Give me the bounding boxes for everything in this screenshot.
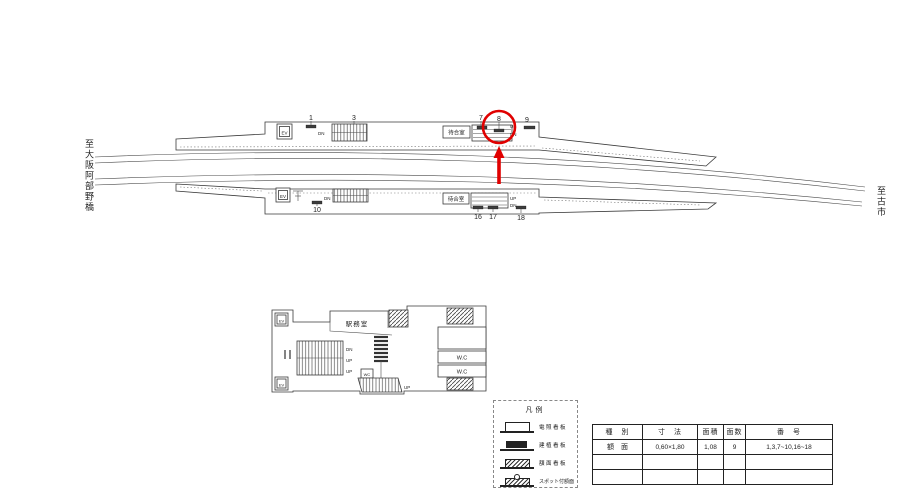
- position-number-7: 7: [479, 115, 483, 122]
- cell-area: [698, 470, 724, 485]
- col-header-area: 面積: [698, 425, 724, 440]
- escalator: [447, 308, 473, 324]
- position-number-10: 10: [313, 207, 321, 214]
- wc-room-label: W.C: [457, 370, 467, 376]
- legend-item-label: 建植看板: [539, 441, 567, 449]
- ad-board-mark-9: [524, 126, 535, 129]
- spec-table-row: [593, 470, 833, 485]
- legend-title: 凡例: [494, 405, 577, 415]
- col-header-count: 面数: [724, 425, 746, 440]
- wc-small-label: WC: [364, 372, 371, 377]
- position-number-17: 17: [489, 214, 497, 221]
- ad-board-mark-1: [306, 125, 316, 128]
- position-number-9: 9: [525, 117, 529, 124]
- cell-type: 額 面: [593, 440, 643, 455]
- spec-table-row: [593, 455, 833, 470]
- elevator-label: EV: [279, 383, 285, 388]
- spec-table-header-row: 種 別 寸 法 面積 面数 番 号: [593, 425, 833, 440]
- waiting-room-label: 待合室: [448, 195, 465, 203]
- up-label: UP: [404, 385, 410, 390]
- concourse: 駅務室 W.C W.C DN UP UP WC: [272, 306, 486, 394]
- col-header-size: 寸 法: [643, 425, 698, 440]
- cell-number: [746, 470, 833, 485]
- elevator-label: EV: [280, 194, 286, 199]
- elevator-label: EV: [281, 131, 287, 136]
- dn-label: DN: [324, 196, 331, 201]
- cell-size: [643, 455, 698, 470]
- spec-table-row: 額 面 0,60×1,80 1,08 9 1,3,7~10,16~18: [593, 440, 833, 455]
- waiting-room-label: 待合室: [448, 129, 465, 137]
- cell-type: [593, 455, 643, 470]
- ad-board-mark-18: [516, 206, 526, 209]
- escalator: [447, 378, 473, 390]
- cell-number: [746, 455, 833, 470]
- station-diagram-svg: EV 1 DN 3 待合室 7 8 UP DN 9: [0, 0, 919, 491]
- up-label: UP: [510, 196, 516, 201]
- position-number-1: 1: [309, 115, 313, 122]
- cell-size: 0,60×1,80: [643, 440, 698, 455]
- legend-item: 額面看板: [494, 454, 577, 472]
- machine-room: [438, 327, 486, 349]
- center-steps: [374, 337, 388, 361]
- position-number-8: 8: [497, 116, 501, 123]
- ad-board-mark-8: [494, 129, 504, 132]
- solid-sign-icon: [498, 438, 536, 452]
- cell-area: 1,08: [698, 440, 724, 455]
- cell-type: [593, 470, 643, 485]
- station-ad-diagram: { "page": { "background": "#ffffff", "li…: [0, 0, 919, 491]
- wc-room-label: W.C: [457, 356, 467, 362]
- up-label: UP: [346, 369, 352, 374]
- stairs: [358, 378, 402, 392]
- col-header-number: 番 号: [746, 425, 833, 440]
- cell-size: [643, 470, 698, 485]
- lower-platform: EV 10 DN 待合室 UP DN 16 17 18: [176, 184, 716, 222]
- cell-number: 1,3,7~10,16~18: [746, 440, 833, 455]
- endpoint-label-right: 至古市: [876, 186, 885, 218]
- position-number-18: 18: [517, 215, 525, 222]
- cell-count: 9: [724, 440, 746, 455]
- cell-count: [724, 455, 746, 470]
- stairs-block: [471, 193, 508, 208]
- hatched-sign-icon: [498, 456, 536, 470]
- cell-count: [724, 470, 746, 485]
- elevator-label: EV: [279, 319, 285, 324]
- lightbox-sign-icon: [498, 420, 536, 434]
- ad-board-mark-17: [488, 206, 498, 209]
- legend-item-label: スポット付額面: [539, 478, 574, 485]
- dn-label: DN: [318, 131, 325, 136]
- position-number-16: 16: [474, 214, 482, 221]
- cell-area: [698, 455, 724, 470]
- legend-item: 建植看板: [494, 436, 577, 454]
- position-number-3: 3: [352, 115, 356, 122]
- up-label: UP: [346, 358, 352, 363]
- dn-label: DN: [510, 203, 517, 208]
- spot-sign-icon: [498, 474, 536, 488]
- endpoint-label-left: 至大阪阿部野橋: [84, 139, 93, 213]
- drawing-stage: EV 1 DN 3 待合室 7 8 UP DN 9: [0, 0, 919, 491]
- legend-item: スポット付額面: [494, 472, 577, 490]
- escalator: [389, 310, 408, 327]
- ad-board-mark-16: [473, 206, 483, 209]
- station-office-label: 駅務室: [346, 319, 369, 328]
- upper-platform: EV 1 DN 3 待合室 7 8 UP DN 9: [176, 115, 716, 166]
- dn-label: DN: [346, 347, 353, 352]
- legend-item-label: 電照看板: [539, 423, 567, 431]
- spec-table: 種 別 寸 法 面積 面数 番 号 額 面 0,60×1,80 1,08 9 1…: [592, 424, 833, 485]
- ad-board-mark-10: [312, 201, 322, 204]
- legend-item: 電照看板: [494, 418, 577, 436]
- col-header-type: 種 別: [593, 425, 643, 440]
- legend-box: 凡例 電照看板 建植看板 額面看板 スポット付額面: [493, 400, 578, 488]
- legend-item-label: 額面看板: [539, 459, 567, 467]
